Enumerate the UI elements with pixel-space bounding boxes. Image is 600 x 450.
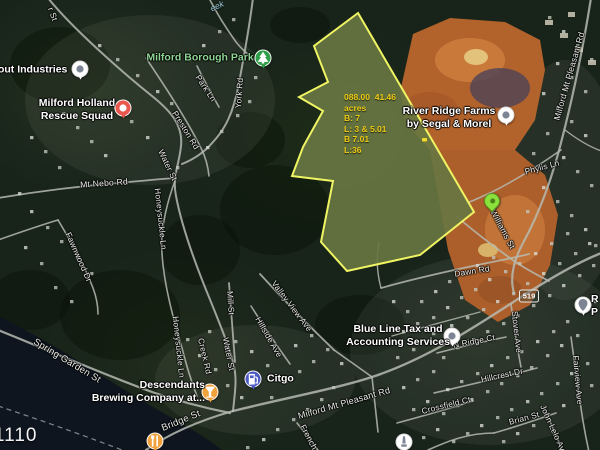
satellite-basemap — [0, 0, 600, 450]
river-ridge-marker[interactable] — [498, 107, 515, 124]
parcel-point-marker — [422, 138, 427, 142]
river-ridge-label[interactable]: River Ridge Farmsby Segal & Morel — [403, 105, 496, 131]
poi-label-line: Blue Line Tax and — [346, 323, 450, 336]
poi-label-line: Rescue Squad — [39, 110, 115, 123]
edge-poi-label[interactable]: RP — [591, 293, 599, 319]
citgo-marker[interactable] — [245, 371, 262, 388]
citgo-label[interactable]: Citgo — [267, 373, 294, 386]
route-shield-519: 519 — [519, 290, 539, 303]
pin-dot — [488, 197, 495, 204]
monument-marker[interactable] — [396, 434, 413, 450]
pin-icon — [481, 190, 504, 213]
marker-tail — [580, 311, 586, 316]
poi-label-line: Accounting Services — [346, 336, 450, 349]
marker-tail — [250, 385, 256, 390]
poi-label-line: Citgo — [267, 373, 294, 386]
poi-label-line: P — [591, 306, 599, 319]
poi-label-line: atout Industries — [0, 64, 67, 77]
marker-tail — [260, 64, 266, 69]
restaurant-marker[interactable] — [147, 433, 164, 450]
poi-label-line: R — [591, 293, 599, 306]
borough-park-label[interactable]: Milford Borough Park — [146, 52, 253, 65]
industries-label[interactable]: atout Industries — [0, 64, 67, 77]
borough-park-marker[interactable] — [255, 50, 272, 67]
marker-tail — [503, 121, 509, 126]
poi-label-line: by Segal & Morel — [403, 118, 496, 131]
marker-tail — [207, 398, 213, 403]
marker-tail — [152, 447, 158, 450]
rescue-squad-marker[interactable] — [115, 100, 132, 117]
rescue-squad-label[interactable]: Milford HollandRescue Squad — [39, 97, 115, 123]
poi-label-line: Descendants — [92, 379, 205, 392]
marker-tail — [120, 114, 126, 119]
poi-label-line: Milford Holland — [39, 97, 115, 110]
map-canvas[interactable]: 088.00 41.46acresB: 7L: 3 & 5.01B 7.01L:… — [0, 0, 600, 450]
descendants-label[interactable]: DescendantsBrewing Company at... — [92, 379, 205, 405]
edge-poi-marker[interactable] — [575, 297, 592, 314]
blue-line-tax-label[interactable]: Blue Line Tax andAccounting Services — [346, 323, 450, 349]
industries-marker[interactable] — [72, 61, 89, 78]
parcel-pin[interactable] — [484, 193, 500, 209]
poi-label-line: River Ridge Farms — [403, 105, 496, 118]
poi-label-line: Milford Borough Park — [146, 52, 253, 65]
poi-label-line: Brewing Company at... — [92, 392, 205, 405]
marker-tail — [77, 75, 83, 80]
